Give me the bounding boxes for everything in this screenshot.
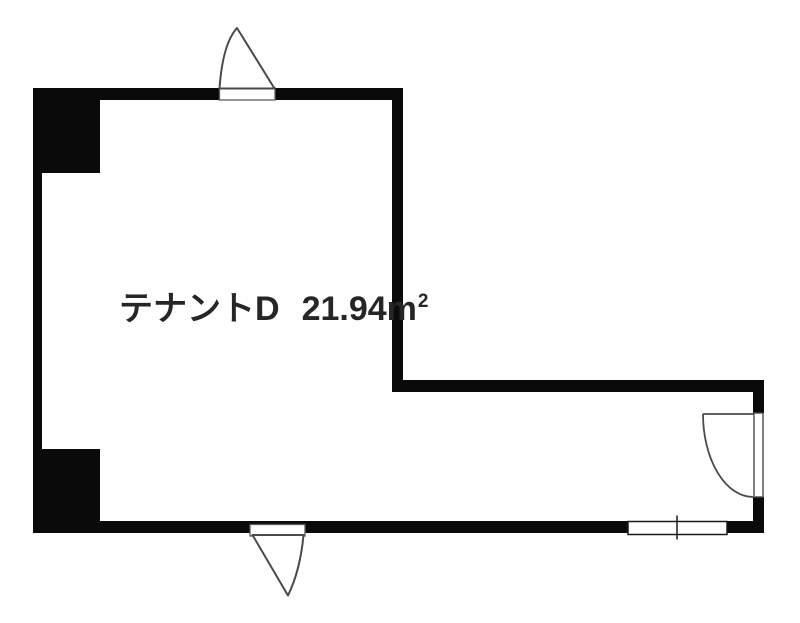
column-bottom-left <box>33 449 100 533</box>
wall-middle <box>392 380 764 392</box>
column-top-left <box>33 88 100 173</box>
right-door-symbol <box>703 413 763 497</box>
area-unit-exponent: 2 <box>418 291 429 312</box>
window-symbol <box>628 516 727 540</box>
area-value: 21.94 <box>302 290 387 328</box>
area-unit-base: m <box>387 290 417 328</box>
bottom-door-swing-icon <box>253 535 304 596</box>
right-door-swing-arc-icon <box>703 414 753 497</box>
area-unit: m2 <box>387 290 429 328</box>
right-door-jamb <box>754 413 763 497</box>
floorplan: テナントD21.94m2 <box>0 0 800 623</box>
wall-upper-right <box>392 88 403 392</box>
top-door-swing-icon <box>220 28 275 89</box>
wall-right-upper-segment <box>753 380 764 413</box>
tenant-name: テナントD <box>119 290 280 328</box>
room-label: テナントD21.94m2 <box>119 291 428 328</box>
